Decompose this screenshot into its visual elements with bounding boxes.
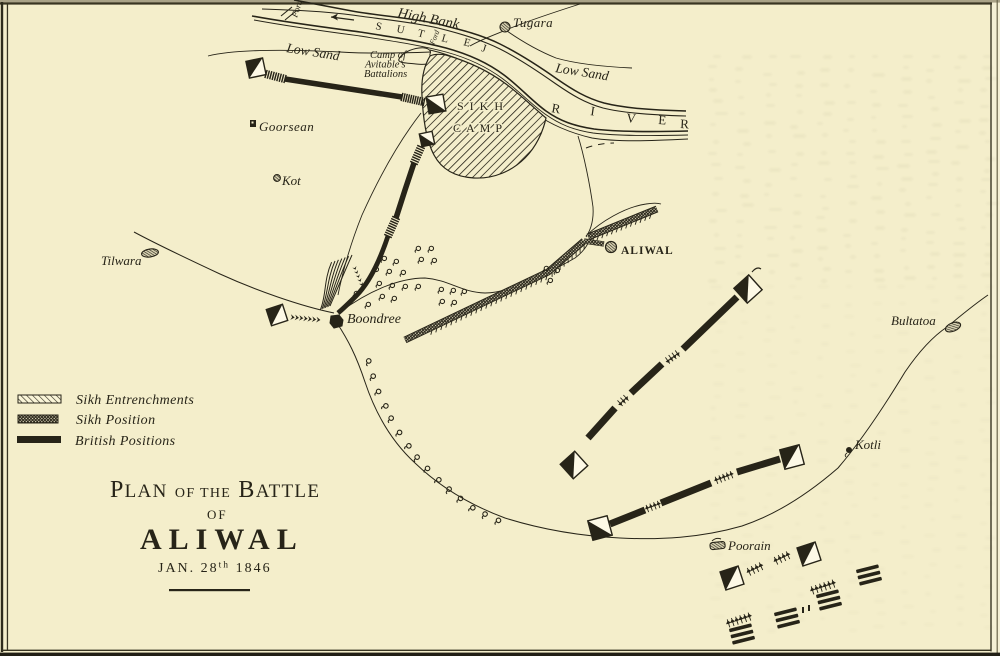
svg-text:SIKH: SIKH [457, 99, 509, 113]
svg-text:British Positions: British Positions [75, 434, 176, 449]
svg-text:ALIWAL: ALIWAL [621, 245, 674, 257]
svg-text:Boondree: Boondree [347, 312, 401, 327]
svg-text:Battalions: Battalions [364, 69, 407, 80]
svg-text:CAMP: CAMP [453, 121, 507, 135]
svg-text:R: R [680, 116, 690, 131]
svg-text:ALIWAL: ALIWAL [140, 523, 304, 556]
svg-text:JAN. 28th 1846: JAN. 28th 1846 [158, 561, 272, 577]
svg-text:E: E [658, 112, 667, 128]
svg-text:Goorsean: Goorsean [259, 119, 314, 134]
svg-text:Tugara: Tugara [513, 15, 553, 30]
svg-text:OF: OF [207, 507, 228, 522]
svg-text:Poorain: Poorain [727, 538, 771, 553]
svg-text:Kot: Kot [281, 173, 301, 188]
svg-text:Sikh Position: Sikh Position [76, 413, 155, 428]
svg-text:Kotli: Kotli [854, 437, 881, 452]
svg-text:Bultatoa: Bultatoa [891, 313, 936, 328]
svg-text:Sikh Entrenchments: Sikh Entrenchments [76, 393, 194, 408]
svg-text:Tilwara: Tilwara [101, 253, 142, 268]
